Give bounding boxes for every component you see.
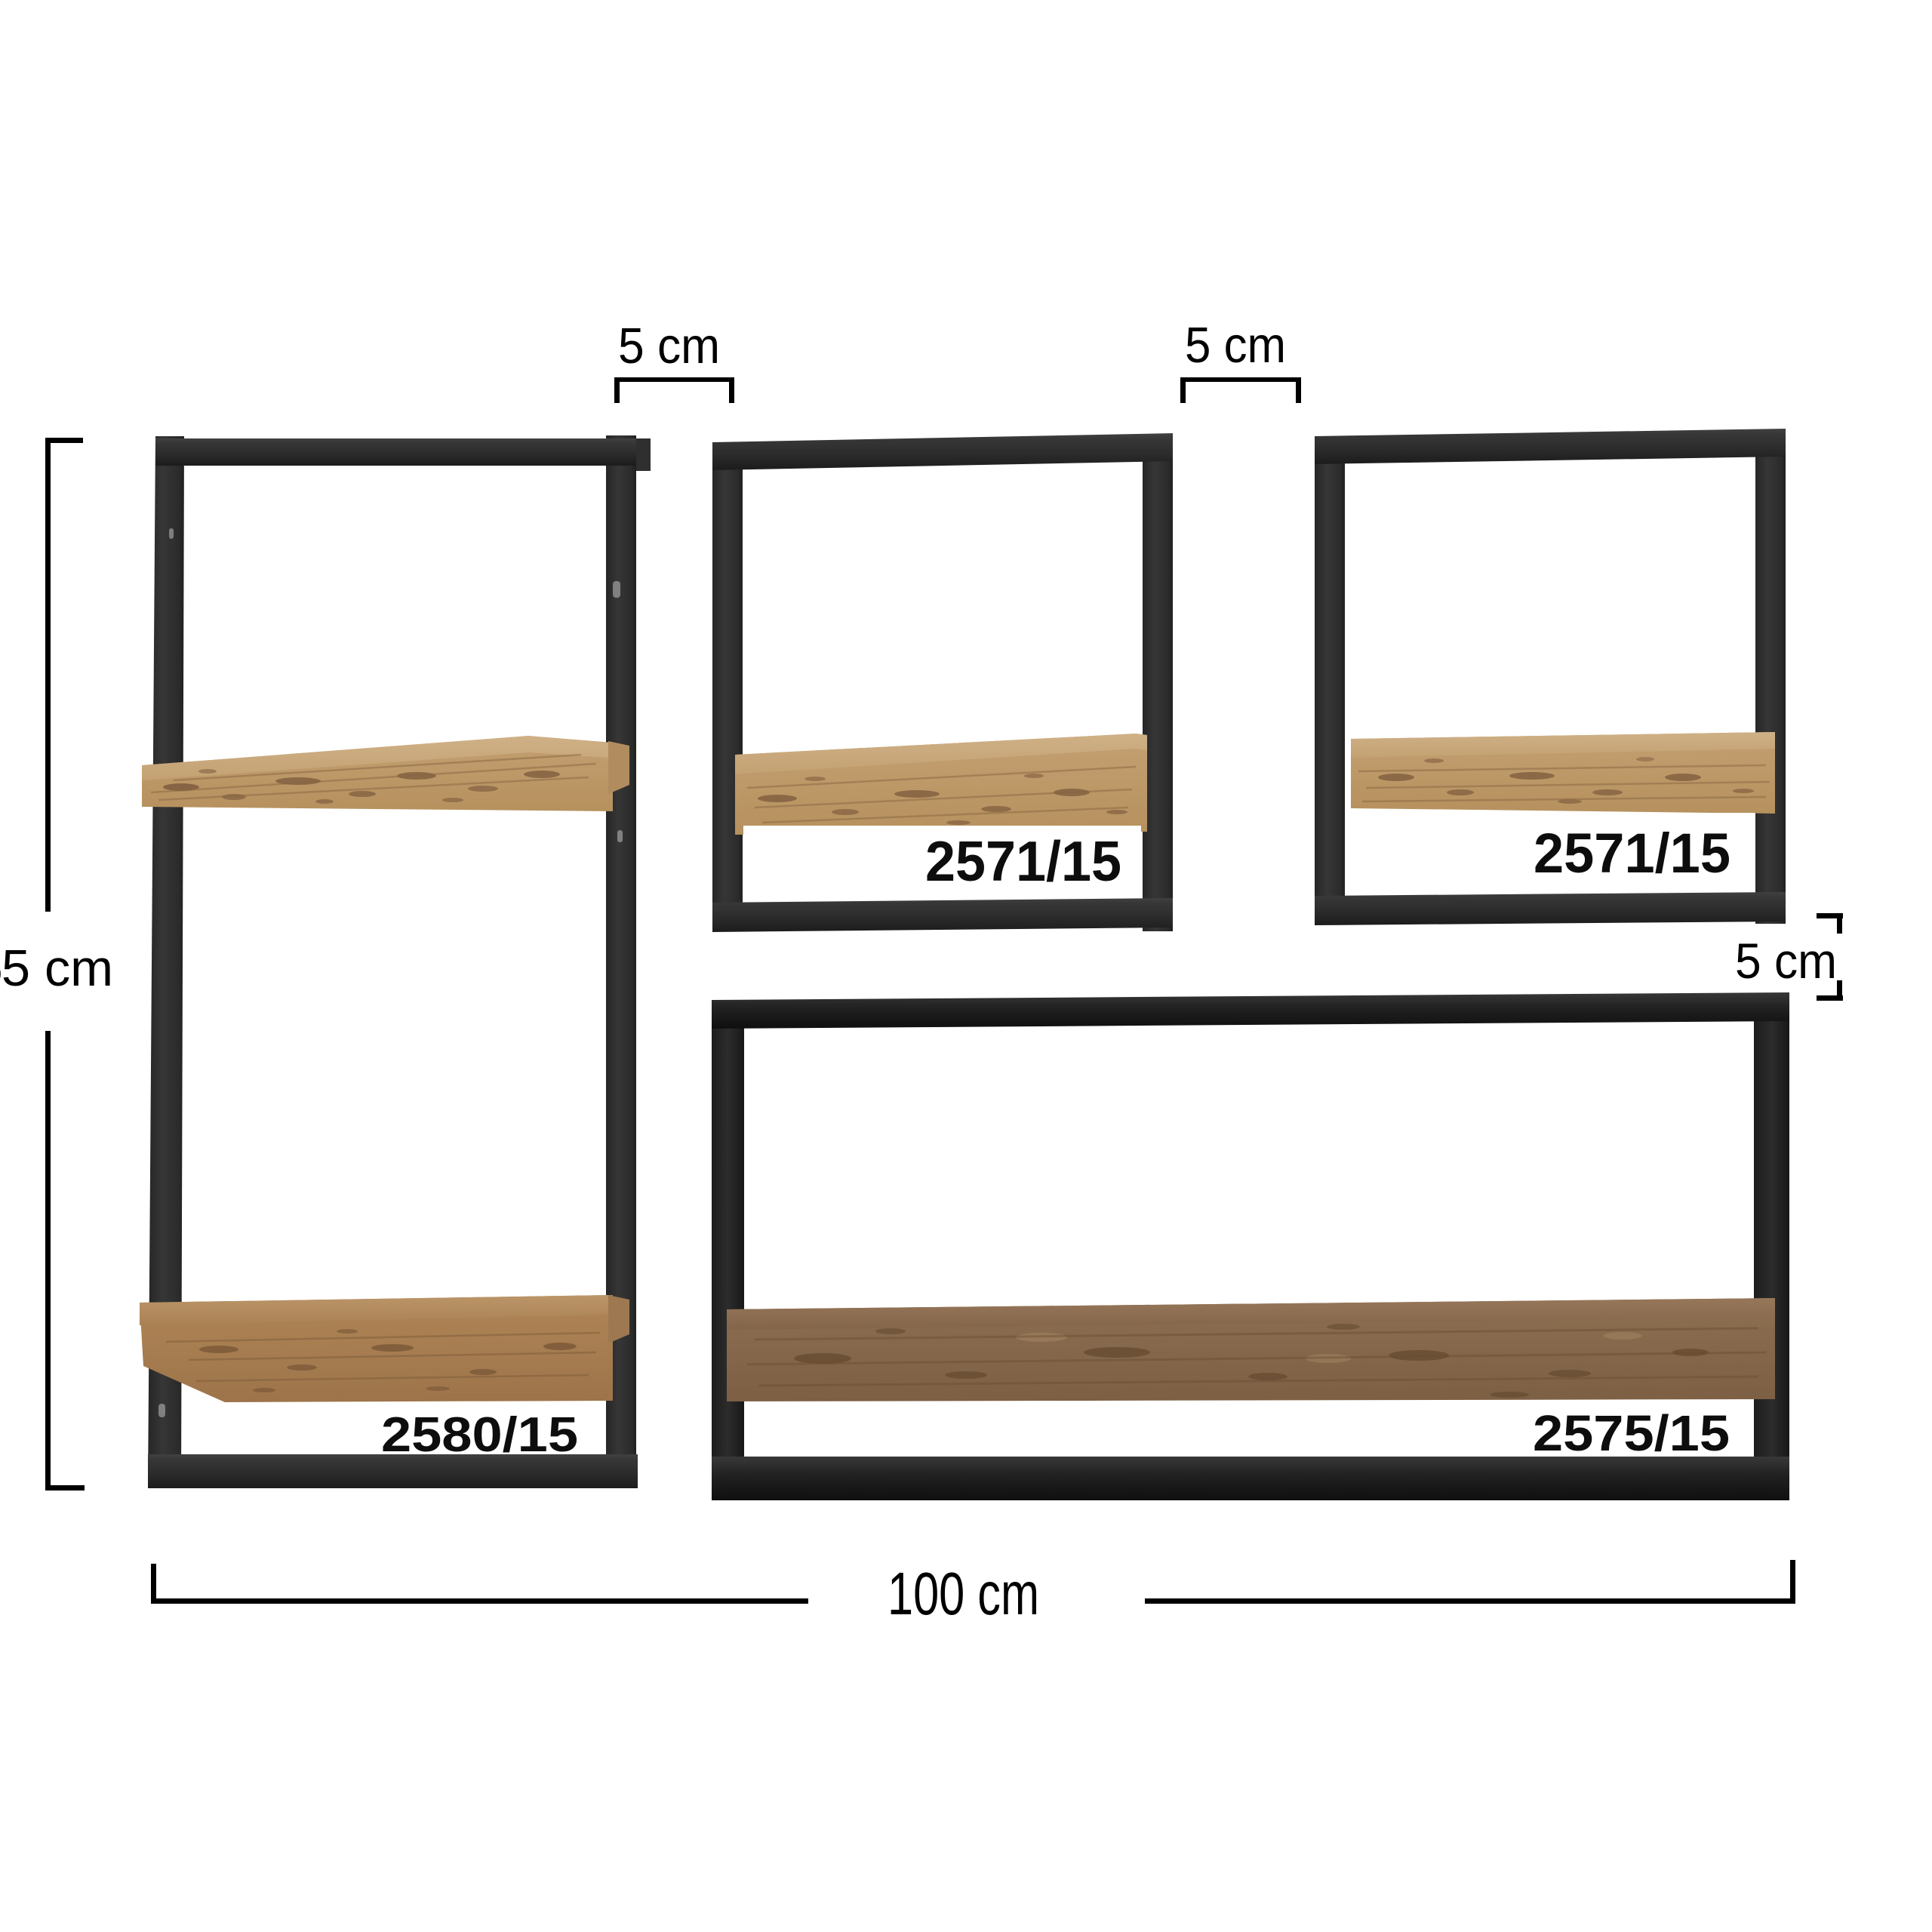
svg-text:5 cm: 5 cm (2, 940, 113, 997)
svg-text:2580/15: 2580/15 (381, 1407, 578, 1462)
svg-text:2571/15: 2571/15 (1534, 822, 1730, 884)
svg-text:5 cm: 5 cm (1185, 317, 1286, 374)
svg-text:100 cm: 100 cm (888, 1560, 1039, 1627)
svg-text:5 cm: 5 cm (1735, 933, 1837, 989)
svg-text:5 cm: 5 cm (618, 318, 720, 374)
svg-text:2575/15: 2575/15 (1533, 1405, 1730, 1462)
svg-text:2571/15: 2571/15 (925, 829, 1121, 893)
